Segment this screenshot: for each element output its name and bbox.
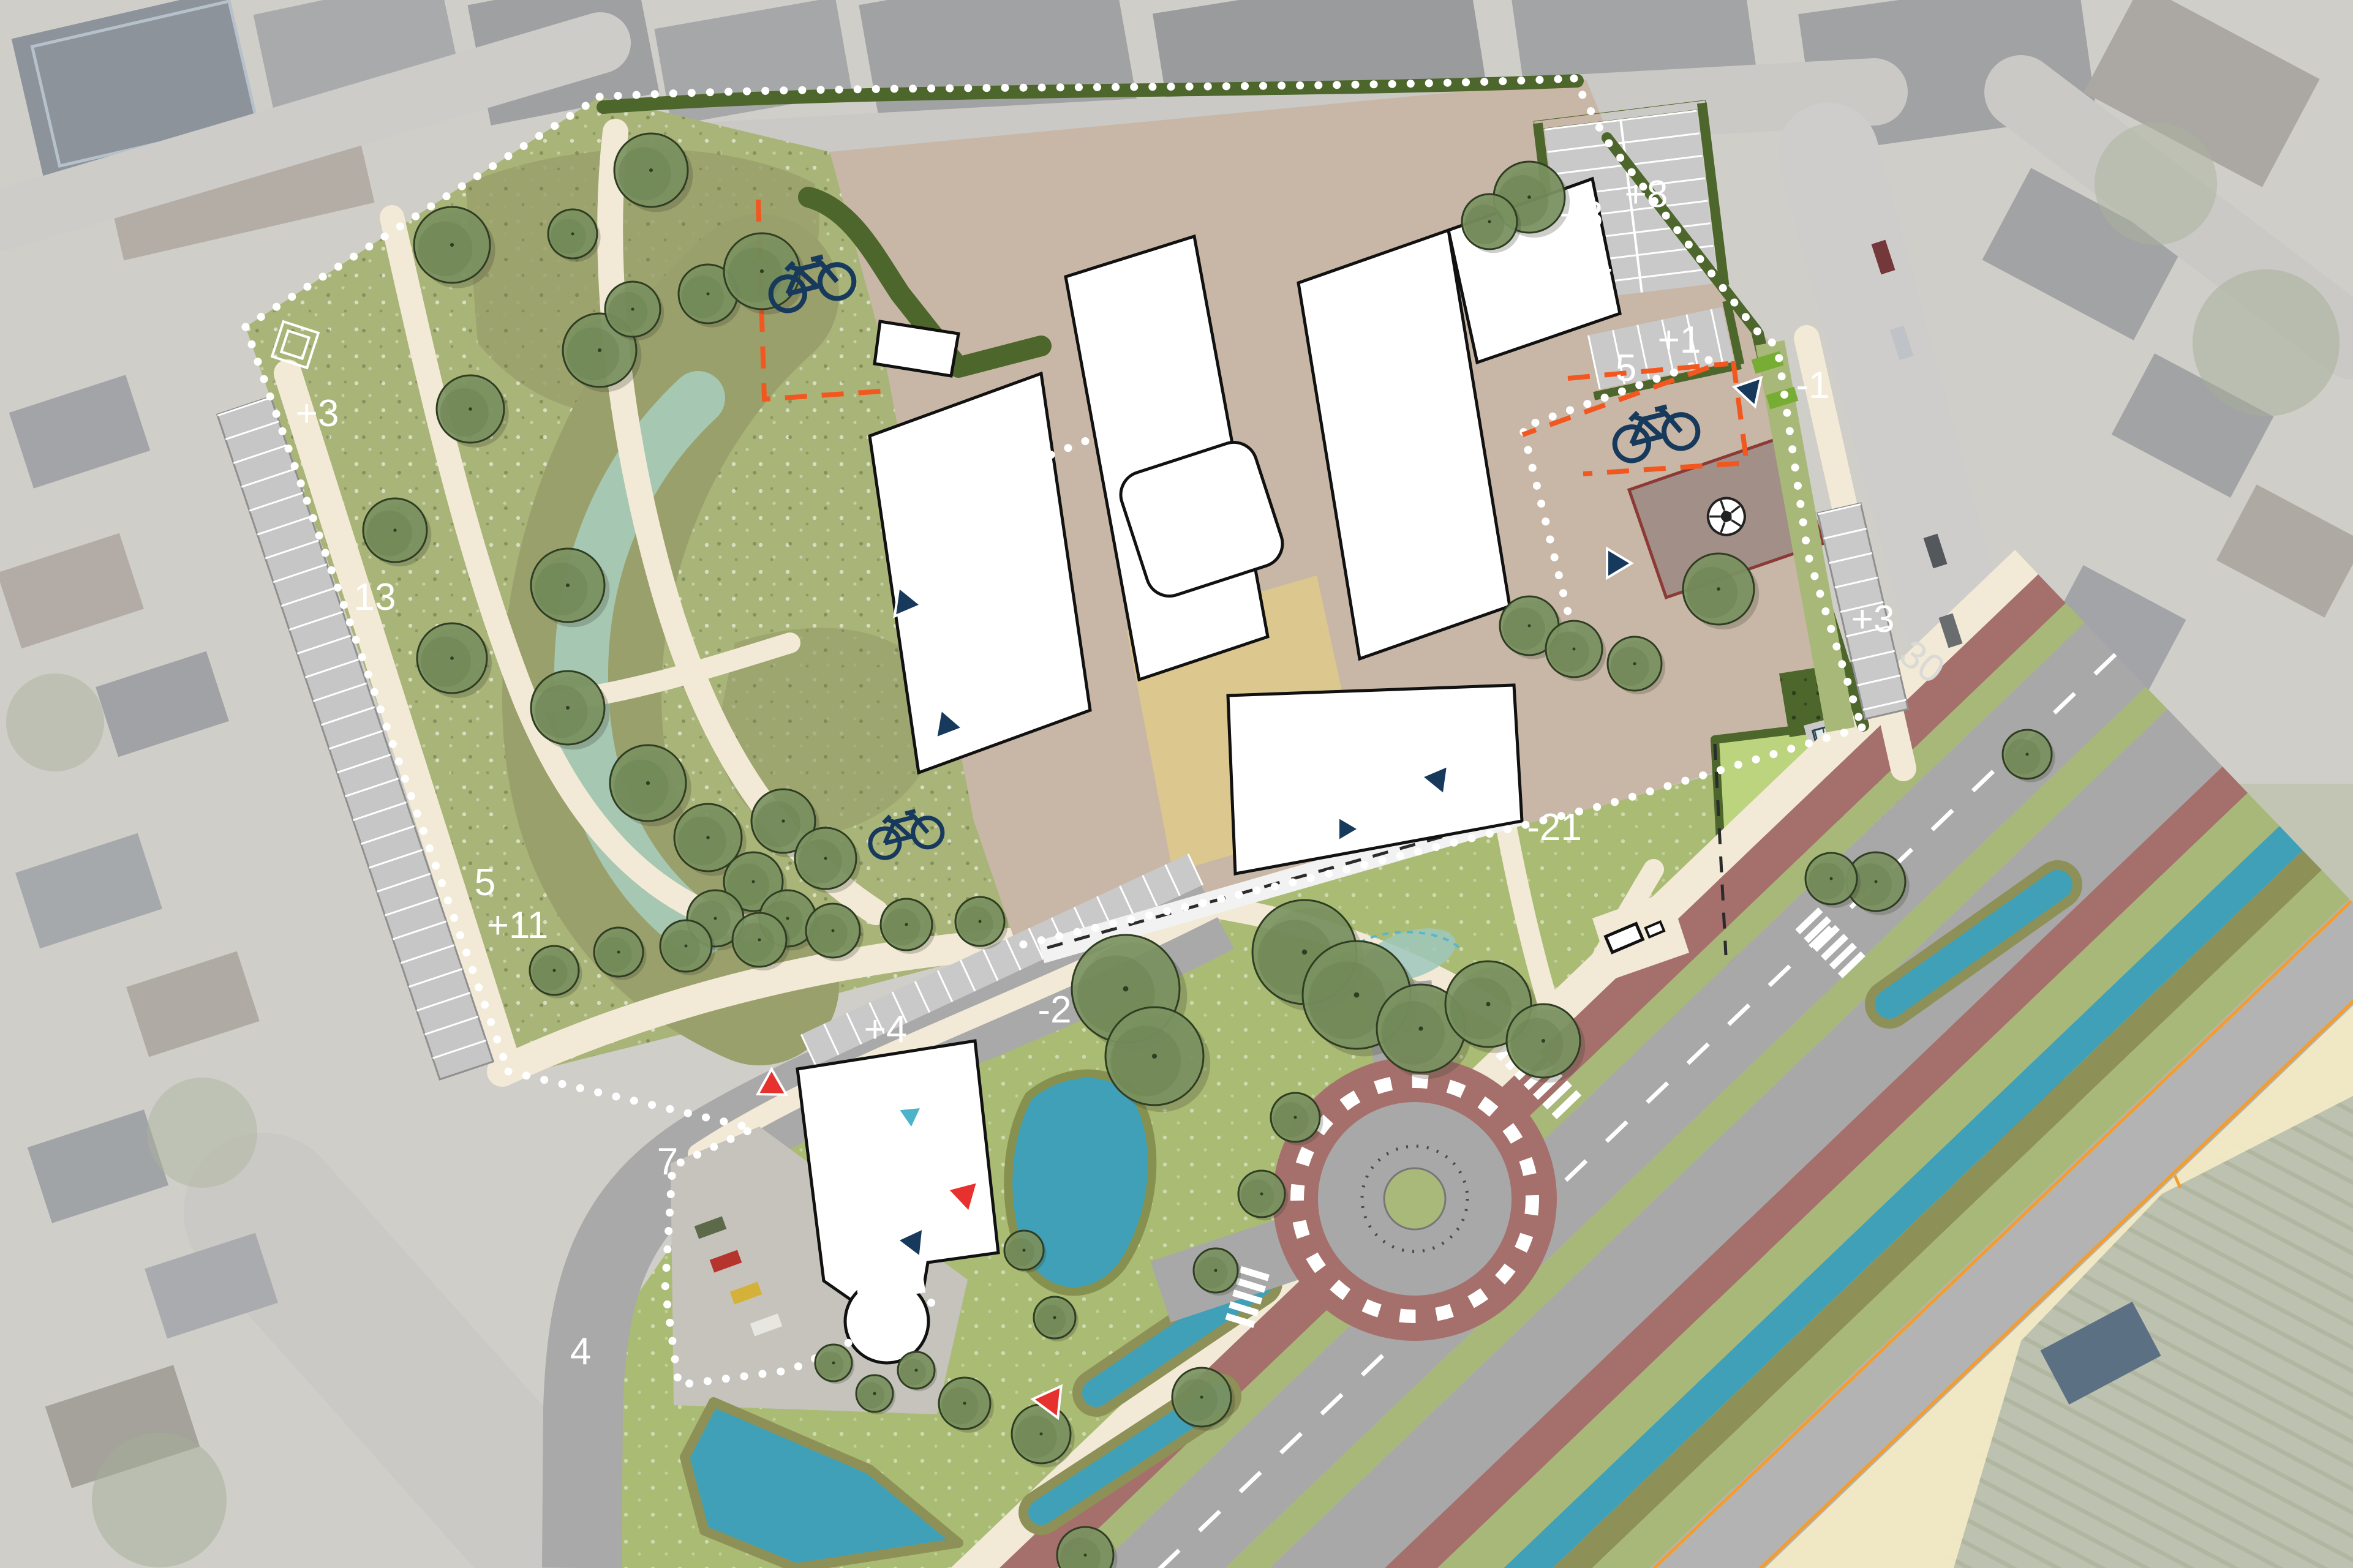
parking-label: +3 — [296, 392, 339, 435]
parking-label: -1 — [1796, 364, 1829, 407]
parking-label: +1 — [1658, 319, 1701, 361]
parking-label: +3 — [1851, 598, 1895, 640]
parking-label: 13 — [354, 576, 396, 618]
parking-label: -5 — [1580, 261, 1614, 304]
parking-label: 4 — [570, 1330, 591, 1373]
parking-label: 5 — [475, 861, 495, 904]
masterplan-map: +8 +8 -5 5 +1 -1 +3 13 5 +11 +4 -2 7 4 -… — [0, 0, 2353, 1568]
parking-label: +11 — [487, 904, 549, 947]
parking-label: +8 — [1560, 194, 1603, 236]
parking-label: 5 — [1616, 347, 1636, 389]
parking-label: +8 — [1625, 173, 1668, 216]
parking-label: +4 — [864, 1008, 908, 1051]
parking-label: 7 — [657, 1141, 678, 1183]
siteplan-svg: +8 +8 -5 5 +1 -1 +3 13 5 +11 +4 -2 7 4 -… — [0, 0, 2353, 1568]
parking-label: -21 — [1527, 806, 1582, 849]
parking-label: -2 — [1037, 989, 1071, 1031]
